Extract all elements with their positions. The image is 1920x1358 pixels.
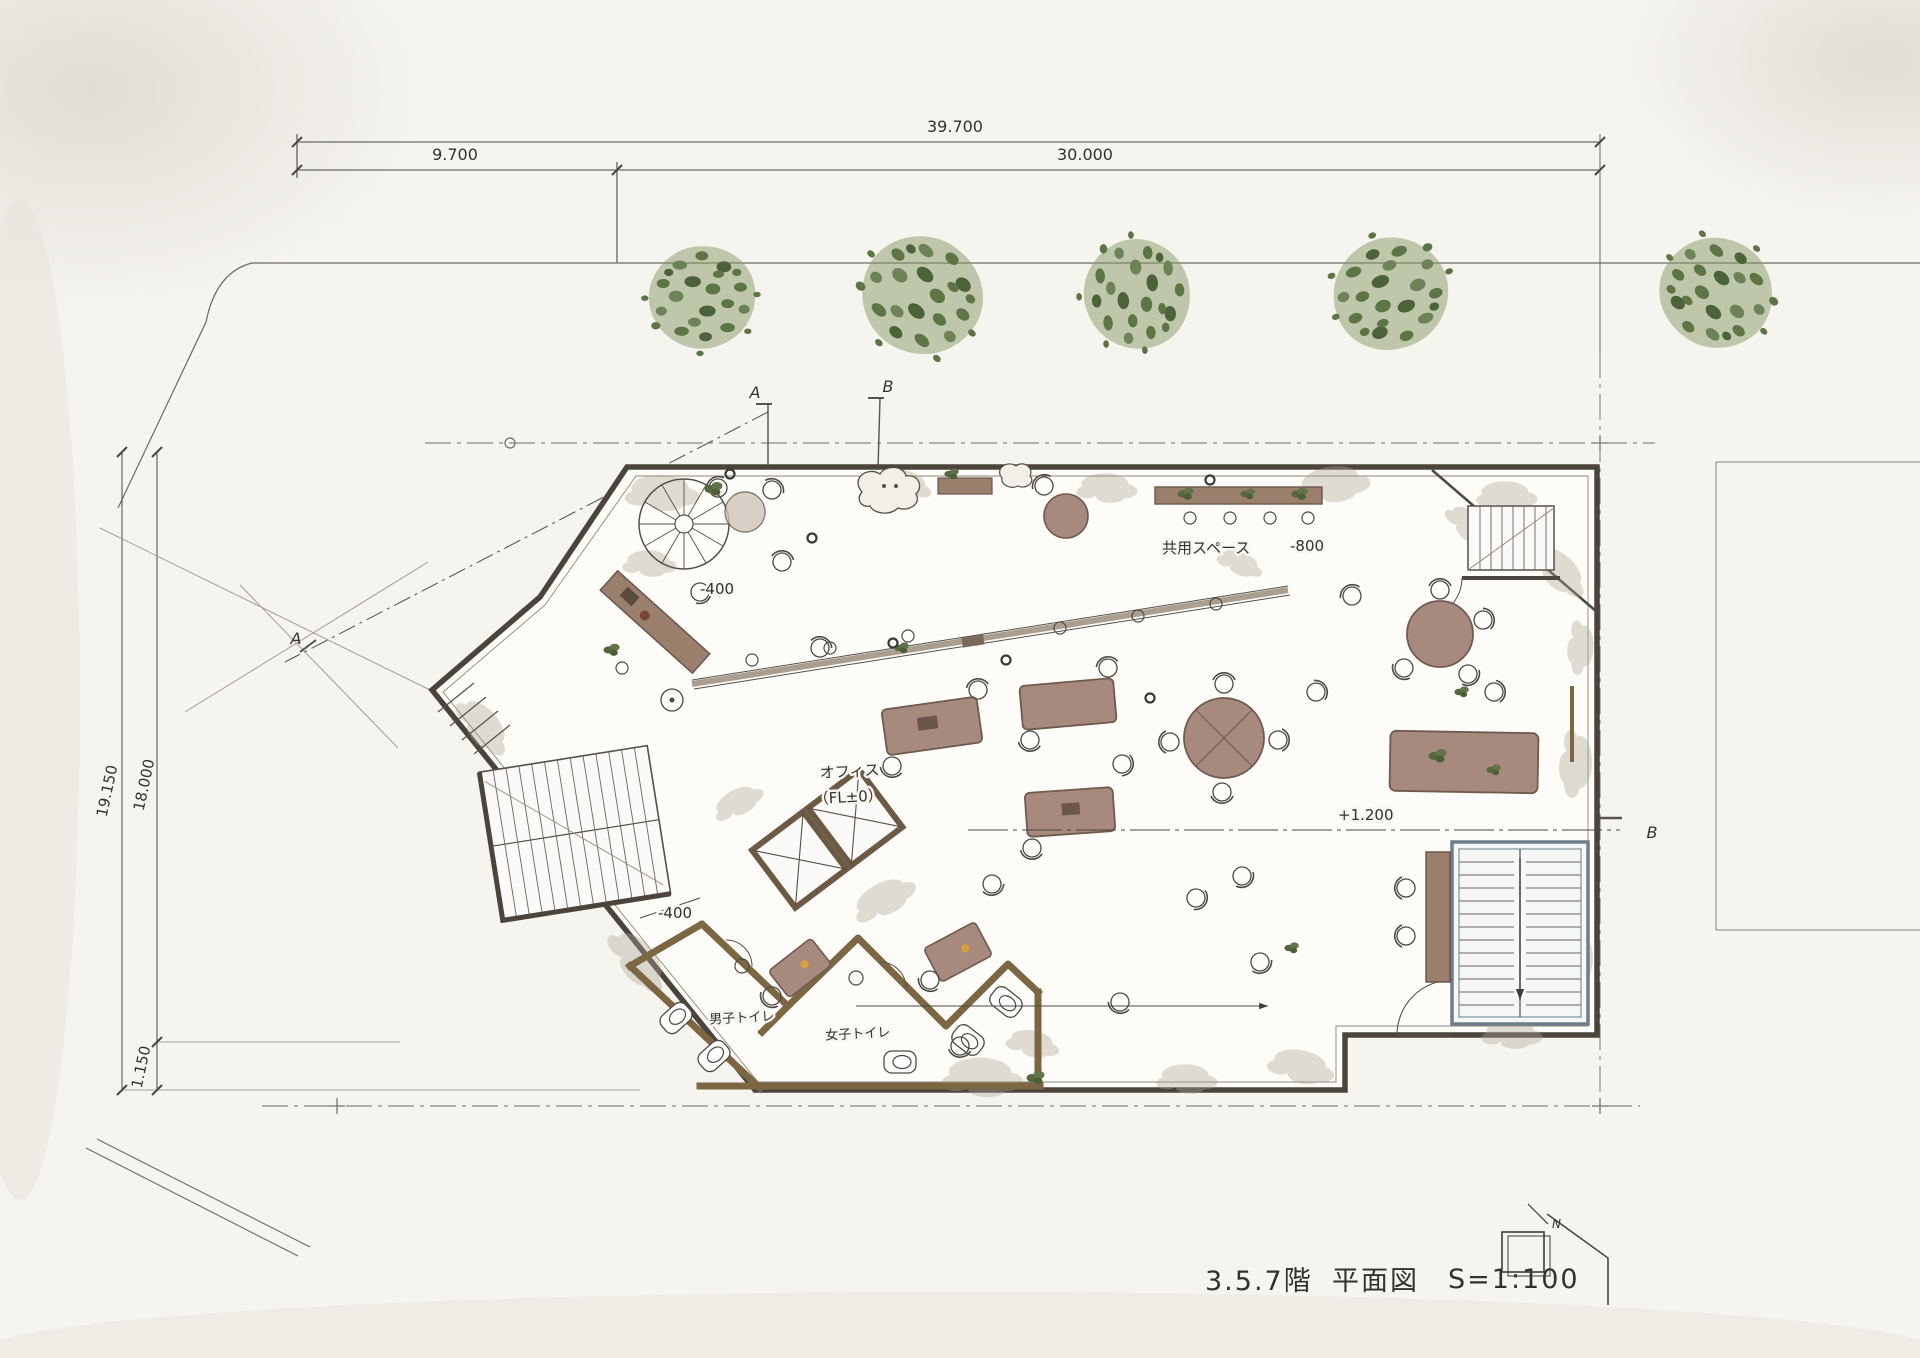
womens-toilet-label: 女子トイレ xyxy=(825,1024,891,1043)
title-scale: S=1:100 xyxy=(1448,1264,1580,1295)
title-floors: 3.5.7階 xyxy=(1205,1266,1313,1297)
common-space-label: 共用スペース xyxy=(1162,539,1250,557)
lower-entry-level: -400 xyxy=(658,904,692,922)
section-marker-b-right: B xyxy=(1647,823,1658,842)
scanned-floor-plan: 39.700 9.700 30.000 xyxy=(0,0,1920,1358)
office-label: オフィス xyxy=(819,761,880,782)
section-marker-a-top: A xyxy=(749,383,761,402)
section-marker-a-left: A xyxy=(290,629,302,648)
main-stair xyxy=(479,746,670,921)
office-level-label: （FL±0） xyxy=(813,786,883,808)
dim-right-width: 30.000 xyxy=(1057,145,1113,164)
upper-entry-level: -400 xyxy=(700,580,734,598)
title-drawing: 平面図 xyxy=(1332,1266,1419,1297)
dim-left-width: 9.700 xyxy=(432,145,478,164)
floor-plan-drawing: 39.700 9.700 30.000 xyxy=(0,0,1920,1358)
common-space-level: -800 xyxy=(1290,537,1324,555)
north-label: N xyxy=(1552,1217,1561,1231)
section-marker-b-top: B xyxy=(883,377,894,396)
terrace-level: +1.200 xyxy=(1338,806,1394,824)
dim-total-width: 39.700 xyxy=(927,117,983,136)
